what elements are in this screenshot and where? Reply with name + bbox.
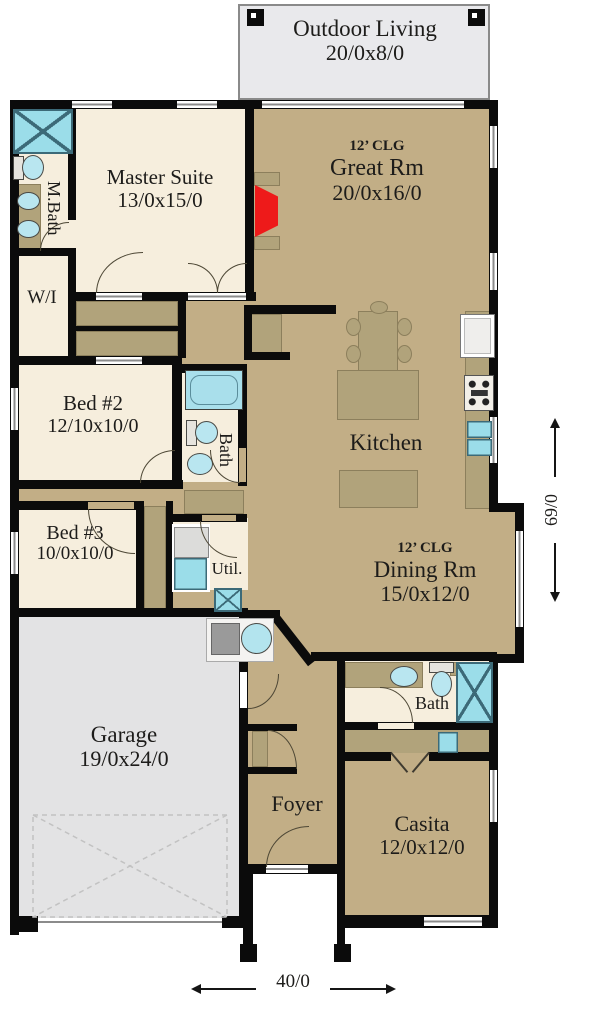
- kitchen-island: [337, 370, 419, 420]
- stove-symbol: [464, 375, 494, 411]
- window: [72, 101, 112, 108]
- dim-line: [200, 988, 258, 990]
- fireplace-hearth: [254, 172, 280, 186]
- room-hall-bath: Bath: [210, 410, 236, 490]
- room-casita: Casita 12/0x12/0: [352, 812, 492, 859]
- wi-shelf: [76, 301, 178, 326]
- room-dims: 13/0x15/0: [78, 189, 242, 212]
- room-dining: 12’ CLG Dining Rm 15/0x12/0: [340, 540, 510, 606]
- opening: [240, 672, 247, 708]
- room-dims: 19/0x24/0: [30, 747, 218, 771]
- window: [424, 917, 482, 926]
- room-dims: 10/0x10/0: [10, 544, 140, 565]
- window: [490, 126, 497, 168]
- dim-overall-depth: 69/0: [541, 477, 569, 543]
- dim-overall-width: 40/0: [256, 972, 330, 993]
- porch-foot: [334, 944, 351, 962]
- foyer-closet-shelf: [252, 731, 268, 767]
- room-dims: 20/0x16/0: [292, 181, 462, 205]
- kitchen-table: [358, 311, 398, 371]
- dryer-symbol: [174, 558, 207, 590]
- kitchen-sink-symbol: [467, 439, 492, 456]
- dim-line: [330, 988, 386, 990]
- chair: [397, 318, 412, 336]
- room-bed3: Bed #3 10/0x10/0: [10, 522, 140, 565]
- furnace-symbol: [211, 623, 240, 655]
- kitchenette-sink-symbol: [438, 732, 458, 753]
- room-foyer: Foyer: [246, 792, 348, 816]
- window: [177, 101, 217, 108]
- room-master-suite: Master Suite 13/0x15/0: [78, 166, 242, 212]
- kitchen-island: [339, 470, 418, 508]
- opening: [378, 723, 414, 729]
- wall-casita-top-right: [429, 752, 493, 761]
- wall-casita-top-left: [343, 752, 391, 761]
- room-name: Garage: [30, 722, 218, 747]
- wall-wi-right: [178, 296, 186, 358]
- sink-symbol: [390, 666, 418, 687]
- floor-plan: Outdoor Living 20/0x8/0 Master Suite 13/…: [0, 0, 600, 1009]
- room-kitchen: Kitchen: [322, 430, 450, 455]
- room-name: Bed #3: [10, 522, 140, 544]
- room-dims: 20/0x8/0: [252, 41, 478, 65]
- dim-line: [554, 427, 556, 477]
- fireplace-hearth: [254, 236, 280, 250]
- wall-greatrm-bottom-left: [244, 305, 336, 314]
- room-name: Casita: [352, 812, 492, 836]
- room-garage: Garage 19/0x24/0: [30, 722, 218, 771]
- dim-arrow-right: [386, 984, 396, 994]
- chair: [346, 318, 361, 336]
- window: [516, 531, 523, 627]
- room-name: Master Suite: [78, 166, 242, 189]
- opening: [96, 357, 142, 364]
- room-dims: 12/0x12/0: [352, 836, 492, 859]
- room-dims: 12/10x10/0: [12, 415, 174, 437]
- bed3-closet: [144, 506, 166, 614]
- room-name: Bed #2: [12, 392, 174, 415]
- room-name: Dining Rm: [340, 557, 510, 582]
- room-bed2: Bed #2 12/10x10/0: [12, 392, 174, 437]
- wall-casita-bath-bottom: [343, 722, 497, 730]
- opening: [239, 448, 246, 482]
- linen-closet: [184, 490, 244, 514]
- garage-door-swing-area: [32, 814, 228, 918]
- opening: [88, 502, 134, 509]
- wi-shelf-divider: [76, 326, 178, 331]
- dim-arrow-down: [550, 592, 560, 602]
- opening: [96, 293, 142, 300]
- kitchen-sink-symbol: [467, 421, 492, 438]
- garage-door: [38, 918, 222, 926]
- ceiling-note: 12’ CLG: [292, 138, 462, 155]
- porch-foot: [240, 944, 257, 962]
- sink-symbol: [17, 220, 40, 238]
- room-m-bath: M.Bath: [38, 152, 64, 264]
- room-name: Outdoor Living: [252, 16, 478, 41]
- refrigerator-symbol: [460, 314, 495, 358]
- room-great-rm: 12’ CLG Great Rm 20/0x16/0: [292, 138, 462, 205]
- ceiling-note: 12’ CLG: [340, 540, 510, 557]
- dim-line: [554, 543, 556, 593]
- room-name: Great Rm: [292, 155, 462, 181]
- wall-garage-top: [10, 608, 247, 617]
- room-dims: 15/0x12/0: [340, 582, 510, 606]
- pantry-shelf: [248, 314, 282, 356]
- entry-porch: [247, 874, 337, 920]
- chair: [397, 345, 412, 363]
- opening: [188, 293, 246, 300]
- room-outdoor-living: Outdoor Living 20/0x8/0: [252, 16, 478, 65]
- wall-pantry-bottom: [244, 352, 290, 360]
- casita-kitchenette-counter: [343, 728, 493, 754]
- room-util: Util.: [204, 560, 250, 579]
- shower-symbol: [13, 109, 73, 154]
- bathtub-symbol: [185, 370, 243, 410]
- chair: [346, 345, 361, 363]
- shower-symbol: [456, 662, 493, 723]
- drain-pan-symbol: [214, 588, 242, 612]
- opening: [68, 220, 76, 248]
- sliding-door: [262, 101, 464, 108]
- wi-shelf: [76, 331, 178, 356]
- wall-dining-step-back: [494, 654, 524, 663]
- sink-symbol: [17, 192, 40, 210]
- room-casita-bath: Bath: [402, 694, 462, 714]
- room-wi: W/I: [12, 288, 72, 309]
- chair: [370, 301, 388, 314]
- water-heater-symbol: [241, 623, 272, 654]
- wall-garage-bottom-left: [10, 916, 38, 932]
- window: [490, 253, 497, 290]
